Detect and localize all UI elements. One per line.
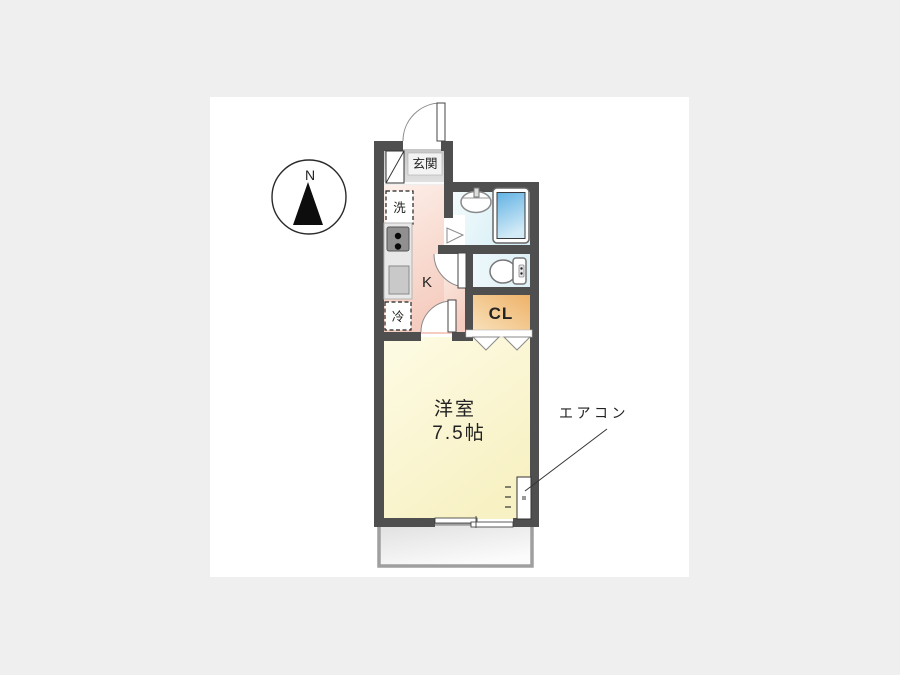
wall-segment xyxy=(530,182,539,527)
main-room-size-label: 7.5帖 xyxy=(432,422,485,444)
toilet-button xyxy=(520,267,522,269)
compass: N xyxy=(272,160,346,234)
wall-segment xyxy=(374,141,403,151)
page-background: { "compass": { "north_label": "N" }, "pl… xyxy=(0,0,900,675)
wall-segment xyxy=(465,287,539,295)
aircon-label: エアコン xyxy=(559,405,629,421)
bath-sink-tap-icon xyxy=(474,188,479,197)
bathtub-icon xyxy=(497,193,525,239)
fridge-label: 冷 xyxy=(392,310,405,324)
room-door-leaf xyxy=(448,300,456,332)
kitchen-fixtures xyxy=(384,223,412,299)
kitchen-sink-icon xyxy=(389,266,409,294)
balcony-area xyxy=(379,524,532,566)
toilet-fixtures xyxy=(490,258,526,284)
wall-segment xyxy=(444,192,453,218)
main-room-label: 洋室 xyxy=(434,398,476,420)
toilet-door-leaf xyxy=(458,253,466,288)
north-label: N xyxy=(305,167,315,183)
wall-segment xyxy=(374,332,421,341)
closet-door-track xyxy=(466,330,532,337)
wall-segment xyxy=(374,518,435,527)
floor-plan: N xyxy=(210,97,689,577)
entrance-door-swing xyxy=(403,103,441,141)
toilet-bowl-icon xyxy=(490,260,516,283)
washer-label: 洗 xyxy=(393,201,406,215)
wall-segment xyxy=(438,245,539,254)
window-pane xyxy=(471,522,513,527)
genkan-label: 玄関 xyxy=(412,156,437,171)
toilet-button xyxy=(520,272,522,274)
floor-plan-canvas: N xyxy=(210,97,689,577)
aircon-unit-mark xyxy=(522,496,526,500)
stove-burner xyxy=(395,233,401,239)
entrance-door-leaf xyxy=(437,103,445,141)
closet-label: CL xyxy=(489,304,514,323)
stove-burner xyxy=(395,243,401,249)
toilet-button-panel xyxy=(519,265,524,277)
kitchen-label: K xyxy=(422,274,432,291)
